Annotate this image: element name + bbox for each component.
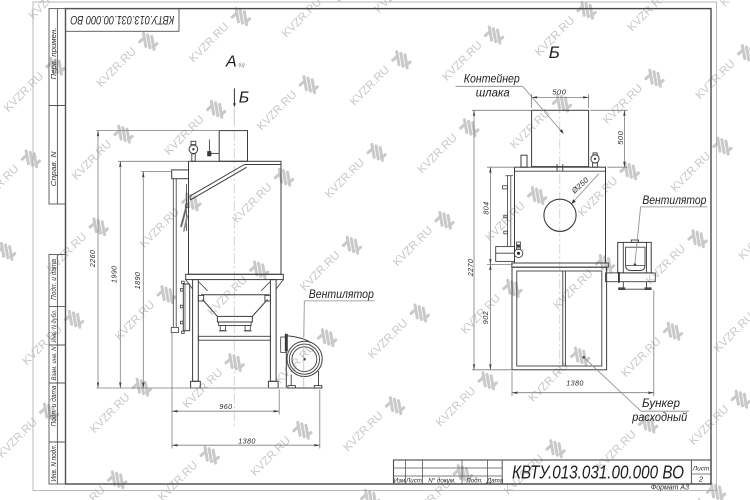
svg-text:Контейнер: Контейнер	[464, 71, 520, 85]
svg-text:804: 804	[482, 201, 491, 214]
svg-text:Лист: Лист	[405, 477, 422, 484]
svg-text:Перв. примен.: Перв. примен.	[51, 27, 58, 79]
svg-text:Инв. N дубл.: Инв. N дубл.	[50, 309, 58, 342]
svg-text:А: А	[225, 54, 237, 71]
svg-text:Б: Б	[239, 90, 249, 107]
svg-text:шлака: шлака	[476, 85, 510, 99]
svg-text:500: 500	[616, 130, 625, 144]
svg-text:N° докум.: N° докум.	[428, 477, 456, 484]
svg-text:(и): (и)	[239, 63, 245, 69]
svg-text:1380: 1380	[238, 437, 256, 446]
svg-text:960: 960	[219, 402, 232, 411]
svg-text:КВТУ.013.031.00.000 ВО: КВТУ.013.031.00.000 ВО	[70, 13, 174, 27]
svg-text:Б: Б	[549, 43, 560, 62]
svg-text:1990: 1990	[109, 265, 118, 283]
svg-text:2: 2	[698, 475, 704, 484]
svg-text:КВТУ.013.031.00.000 ВО: КВТУ.013.031.00.000 ВО	[512, 462, 684, 482]
svg-text:Подп.: Подп.	[466, 477, 482, 484]
svg-text:Формат А3: Формат А3	[651, 485, 689, 492]
svg-text:500: 500	[552, 88, 566, 97]
svg-text:Дата: Дата	[486, 477, 504, 484]
svg-text:Подп. и дата: Подп. и дата	[50, 259, 58, 300]
svg-text:1890: 1890	[133, 272, 142, 290]
svg-text:Вентилятор: Вентилятор	[642, 193, 706, 207]
svg-text:2270: 2270	[466, 259, 475, 278]
svg-text:Подп. и дата: Подп. и дата	[50, 385, 58, 426]
svg-text:Инв. N подл.: Инв. N подл.	[50, 444, 58, 481]
svg-text:Изм: Изм	[394, 477, 406, 484]
svg-text:Вентилятор: Вентилятор	[309, 287, 374, 301]
svg-text:Справ. N: Справ. N	[51, 150, 58, 186]
svg-text:1380: 1380	[566, 379, 584, 388]
svg-text:Взам. инв. N: Взам. инв. N	[51, 346, 58, 380]
svg-text:902: 902	[481, 311, 490, 324]
svg-text:расходный: расходный	[631, 410, 687, 424]
svg-text:Лист: Лист	[692, 466, 710, 473]
svg-text:Бункер: Бункер	[642, 396, 680, 410]
svg-text:2260: 2260	[88, 250, 97, 269]
